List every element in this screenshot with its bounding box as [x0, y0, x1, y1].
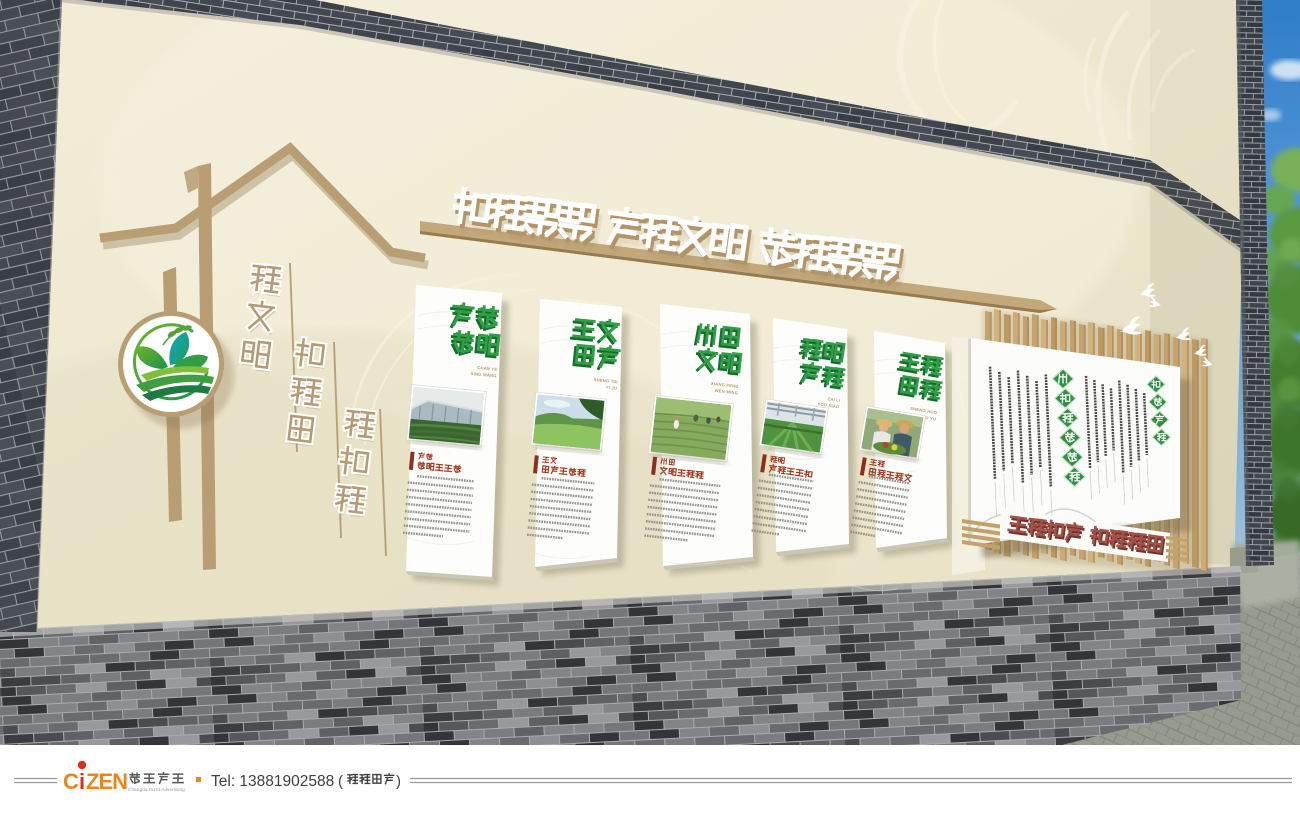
- svg-text:ZEN: ZEN: [86, 769, 127, 794]
- svg-text:Tel: 13881902588: Tel: 13881902588: [211, 773, 334, 790]
- svg-text:(: (: [338, 773, 343, 790]
- svg-text:): ): [396, 773, 401, 790]
- svg-text:i: i: [79, 769, 85, 794]
- svg-text:C: C: [63, 769, 79, 794]
- svg-text:Chengdu Dizrd Advertising: Chengdu Dizrd Advertising: [128, 787, 185, 793]
